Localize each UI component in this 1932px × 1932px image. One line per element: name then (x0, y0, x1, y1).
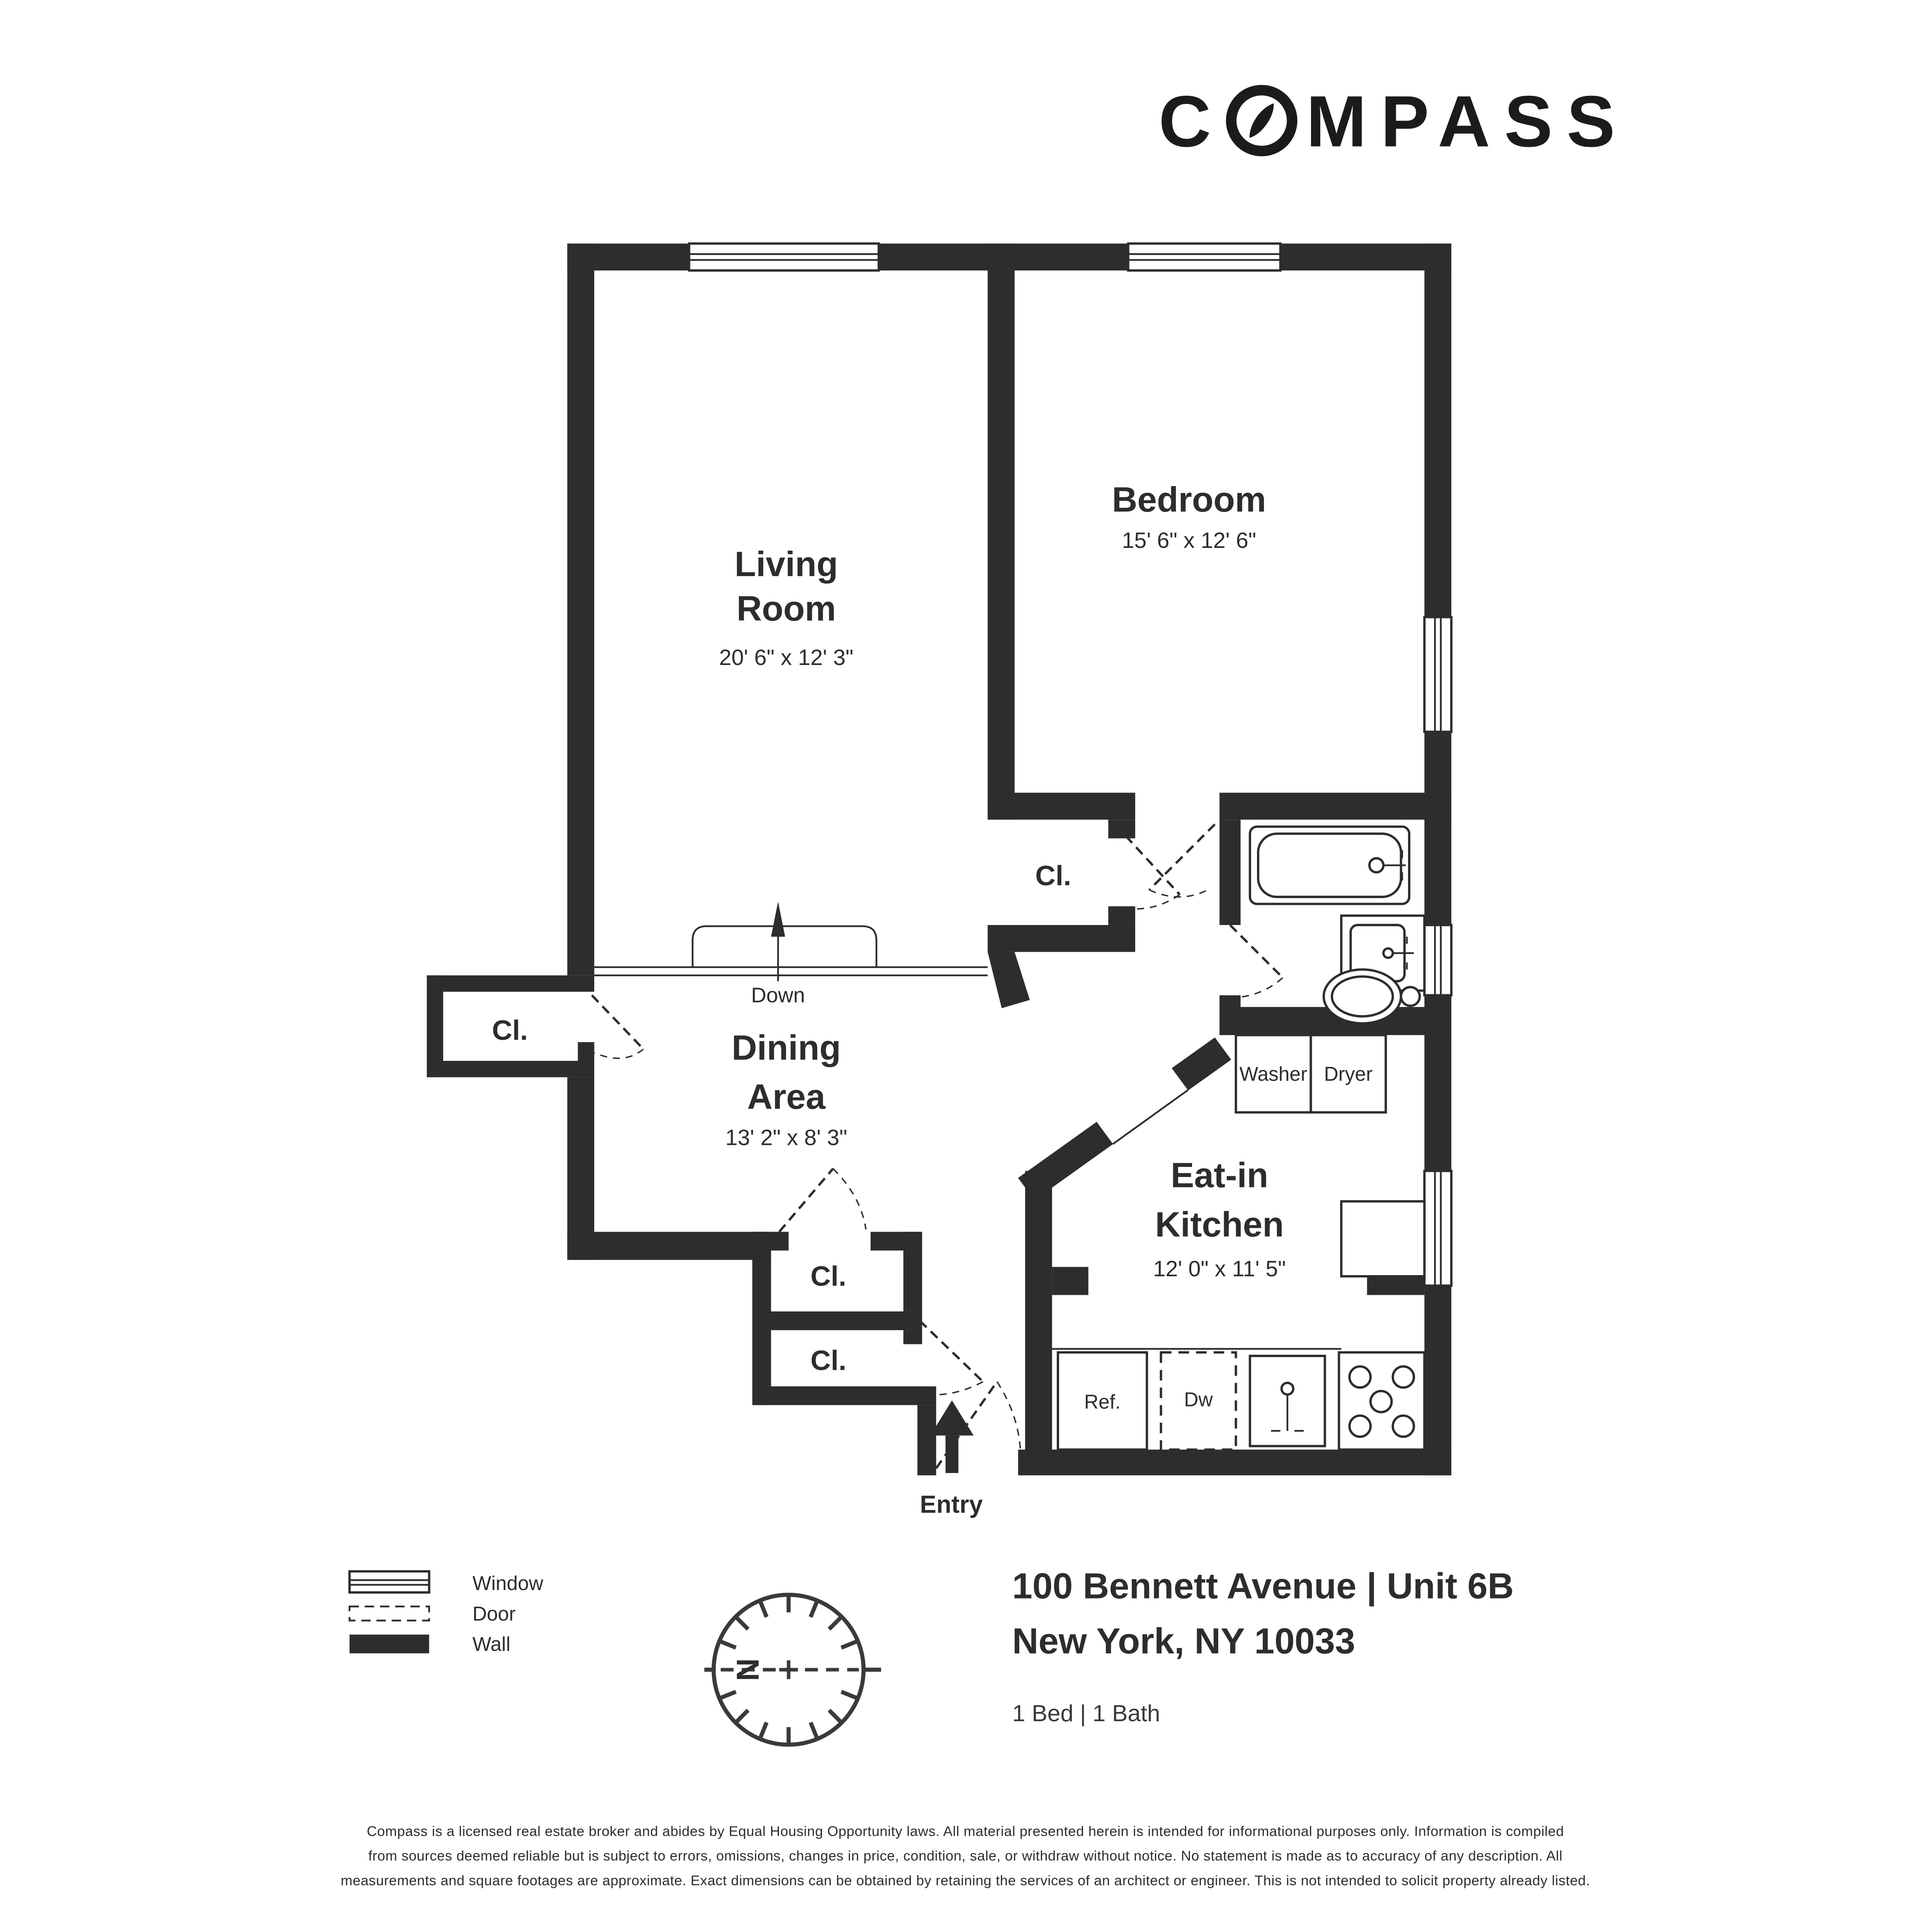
dining-area-name-1: Dining (731, 1028, 841, 1067)
entry-arrow-icon (930, 1400, 974, 1473)
stove (1339, 1352, 1424, 1450)
address-block: 100 Bennett Avenue | Unit 6B New York, N… (1012, 1565, 1514, 1726)
logo-text-c: C (1158, 81, 1225, 162)
legend-door-icon (350, 1607, 429, 1621)
address-line1: 100 Bennett Avenue | Unit 6B (1012, 1565, 1514, 1606)
kitchen-name-1: Eat-in (1171, 1156, 1268, 1195)
kitchen-name-2: Kitchen (1155, 1205, 1284, 1244)
disclaimer-line-2: from sources deemed reliable but is subj… (368, 1848, 1563, 1864)
dryer-label: Dryer (1324, 1063, 1372, 1085)
legend-window-label: Window (473, 1572, 544, 1594)
closet-label-upper: Cl. (810, 1260, 846, 1292)
bedroom-name: Bedroom (1112, 480, 1266, 519)
dishwasher-label: Dw (1184, 1388, 1213, 1410)
window-symbol-bedroom-top (1128, 243, 1281, 270)
compass-rose: N (704, 1595, 881, 1745)
disclaimer: Compass is a licensed real estate broker… (341, 1823, 1590, 1888)
north-label: N (730, 1658, 765, 1681)
living-room-dims: 20' 6" x 12' 3" (719, 645, 854, 670)
laundry: Washer Dryer (1236, 1035, 1386, 1112)
down-arrow-icon (771, 901, 785, 981)
legend-wall-label: Wall (473, 1633, 510, 1655)
window-symbol-bathroom-right (1424, 925, 1451, 995)
disclaimer-line-3: measurements and square footages are app… (341, 1872, 1590, 1888)
closet-label-bedroom: Cl. (1035, 860, 1071, 891)
entry-label: Entry (920, 1491, 983, 1518)
washer-label: Washer (1240, 1063, 1308, 1085)
dining-area-name-2: Area (747, 1078, 826, 1117)
door-swing-bedroom-closet (1126, 836, 1180, 909)
refrigerator-label: Ref. (1084, 1390, 1121, 1413)
beds-baths: 1 Bed | 1 Bath (1012, 1700, 1160, 1726)
closet-label-lower: Cl. (810, 1345, 846, 1376)
bathtub (1250, 827, 1409, 904)
disclaimer-line-1: Compass is a licensed real estate broker… (367, 1823, 1564, 1839)
logo-text-mpass: MPASS (1306, 81, 1629, 162)
door-swing-bathroom (1230, 925, 1282, 998)
window-symbol-living-top (689, 243, 879, 270)
compass-logo: C MPASS (1158, 81, 1629, 162)
legend: Window Door Wall (350, 1571, 544, 1655)
closet-label-left: Cl. (492, 1015, 528, 1046)
window-symbol-kitchen-right (1424, 1171, 1451, 1286)
legend-wall-icon (350, 1634, 429, 1653)
legend-door-label: Door (473, 1602, 516, 1625)
counter (1341, 1201, 1424, 1276)
living-room-name-1: Living (735, 545, 838, 584)
address-line2: New York, NY 10033 (1012, 1621, 1355, 1661)
door-swing-bedroom (1149, 824, 1215, 897)
door-swing-left-closet (592, 995, 643, 1058)
door-swing-lower-closet (920, 1321, 983, 1395)
dining-area-dims: 13' 2" x 8' 3" (725, 1126, 847, 1150)
down-label: Down (751, 983, 805, 1007)
bedroom-dims: 15' 6" x 12' 6" (1122, 528, 1256, 553)
kitchen-sink (1250, 1356, 1325, 1446)
living-room-name-2: Room (736, 589, 836, 628)
logo-o-icon (1231, 90, 1292, 151)
stair-landing (594, 901, 988, 981)
legend-window-icon (350, 1571, 429, 1593)
floorplan-page: C MPASS (0, 0, 1932, 1932)
kitchen-dims: 12' 0" x 11' 5" (1153, 1257, 1286, 1281)
window-symbol-bedroom-right (1424, 617, 1451, 732)
door-swing-upper-closet (779, 1168, 866, 1232)
bathroom-fixtures (1250, 827, 1425, 1023)
